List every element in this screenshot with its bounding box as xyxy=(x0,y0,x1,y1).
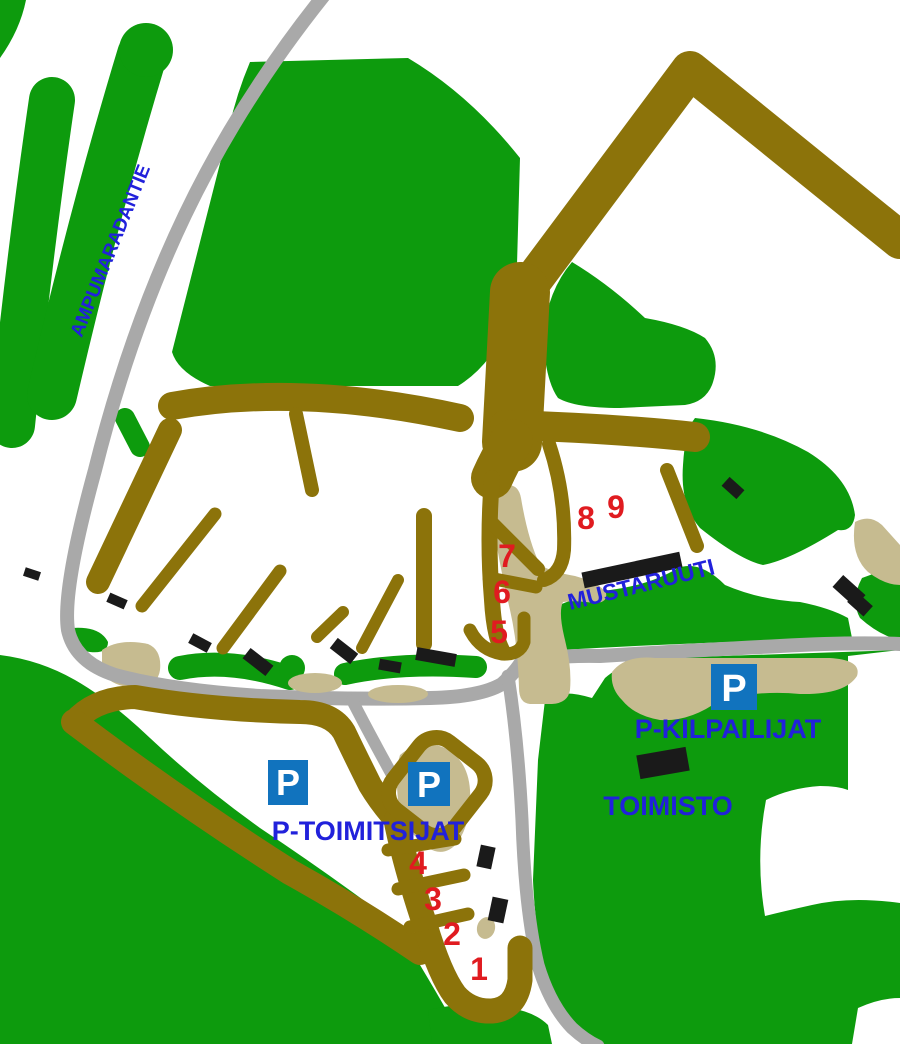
forest-area xyxy=(172,58,520,386)
parking-sign-competitors: P xyxy=(711,664,757,710)
map-canvas: P P P AMPUMARADANTIE MUSTARUUTI P-KILPAI… xyxy=(0,0,900,1044)
parking-competitors-label: P-KILPAILIJAT xyxy=(635,714,822,744)
track-stub xyxy=(296,414,312,490)
sand-area xyxy=(288,673,342,693)
sand-area xyxy=(854,519,900,585)
parking-sign-officials-west: P xyxy=(268,760,308,805)
lane-number-5: 5 xyxy=(490,614,508,650)
track-west-band xyxy=(172,397,460,418)
parking-sign-letter: P xyxy=(721,668,746,710)
parking-sign-letter: P xyxy=(417,764,441,805)
range-line xyxy=(362,580,398,648)
target-stand xyxy=(188,633,212,653)
range-line xyxy=(223,571,280,648)
forest-area xyxy=(119,23,173,77)
track-north-ridge xyxy=(520,70,900,298)
target-stand xyxy=(106,593,127,610)
forest-area xyxy=(125,418,140,447)
parking-officials-label: P-TOIMITSIJAT xyxy=(272,816,465,846)
forest-area xyxy=(543,262,716,408)
office-label: TOIMISTO xyxy=(603,791,733,821)
lane-number-2: 2 xyxy=(443,916,461,952)
range-line xyxy=(142,514,215,606)
forest-area xyxy=(345,666,476,674)
target-stand xyxy=(23,567,41,581)
parking-sign-letter: P xyxy=(276,762,300,803)
parking-sign-officials-east: P xyxy=(408,762,450,806)
lane-number-7: 7 xyxy=(498,538,516,574)
forest-area xyxy=(0,0,26,58)
lane-number-3: 3 xyxy=(424,881,442,917)
target-stand xyxy=(330,638,358,664)
lane-number-1: 1 xyxy=(470,951,488,987)
track-east-band xyxy=(505,425,695,437)
lane-number-4: 4 xyxy=(409,845,427,881)
shooting-range-map: P P P AMPUMARADANTIE MUSTARUUTI P-KILPAI… xyxy=(0,0,900,1044)
lane-number-9: 9 xyxy=(607,489,625,525)
target-stand xyxy=(488,897,509,924)
lane-number-6: 6 xyxy=(493,574,511,610)
range-line xyxy=(317,612,343,637)
lane-rail-right xyxy=(544,444,564,580)
forest-area xyxy=(180,665,290,678)
target-stand xyxy=(476,845,495,870)
lane-number-8: 8 xyxy=(577,500,595,536)
sand-area xyxy=(368,685,428,703)
